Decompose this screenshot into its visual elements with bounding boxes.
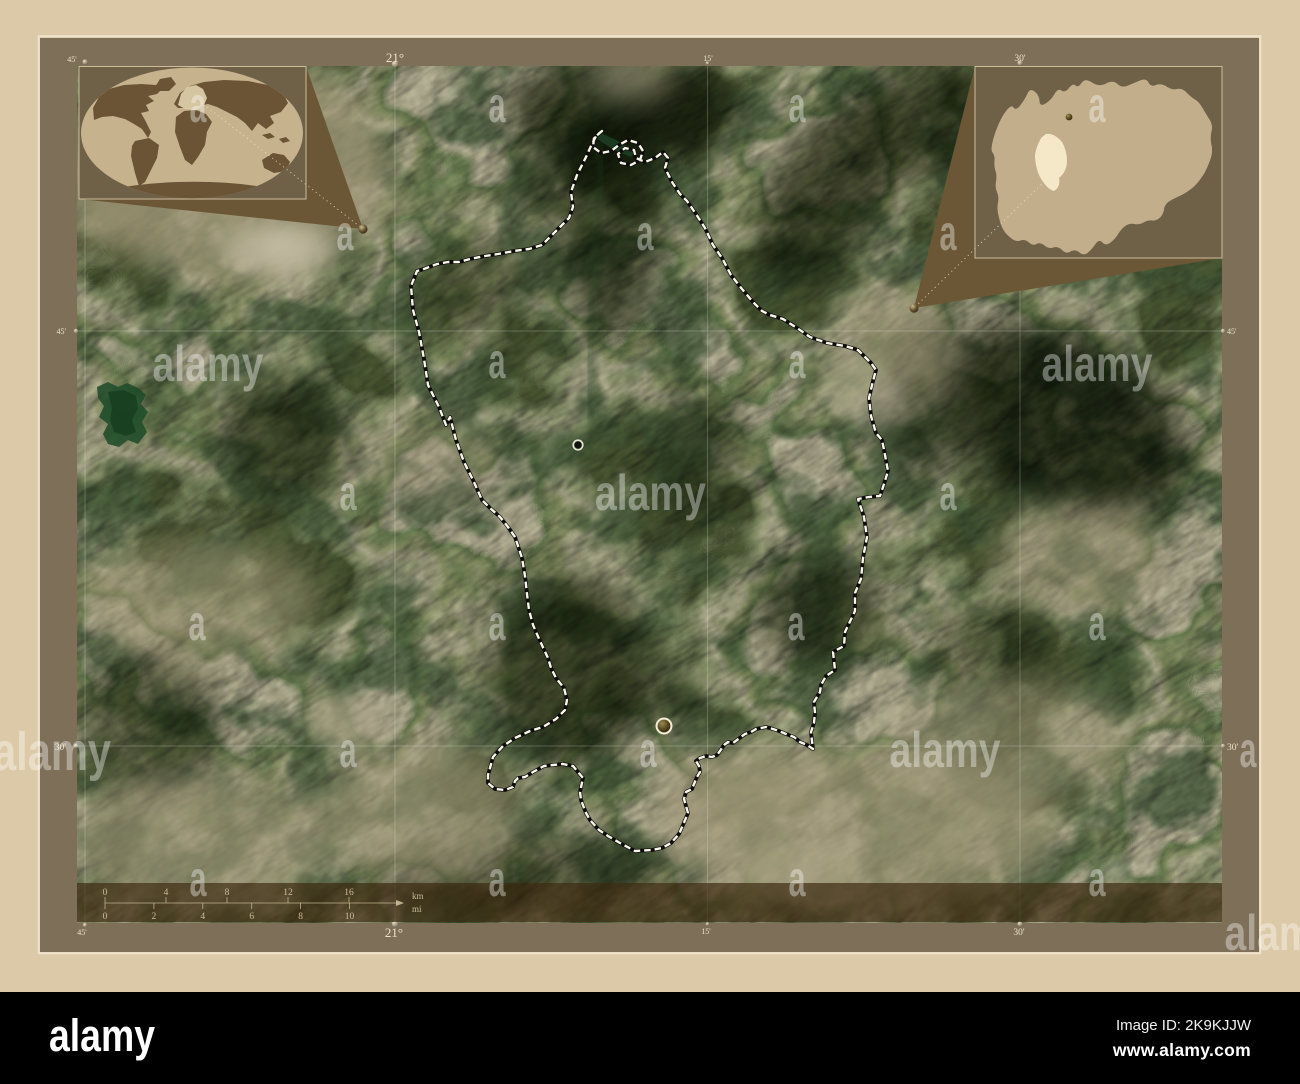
- svg-text:a: a: [489, 851, 507, 907]
- svg-text:a: a: [1089, 595, 1107, 651]
- svg-text:alamy: alamy: [890, 722, 1001, 778]
- svg-text:21°: 21°: [385, 925, 403, 940]
- svg-text:a: a: [340, 722, 358, 778]
- svg-text:15': 15': [703, 54, 713, 63]
- svg-text:mi: mi: [412, 904, 422, 914]
- svg-text:10: 10: [345, 912, 355, 922]
- svg-text:a: a: [189, 595, 207, 651]
- svg-text:45': 45': [1227, 327, 1237, 336]
- svg-text:4: 4: [200, 912, 205, 922]
- svg-text:30': 30': [1227, 743, 1239, 753]
- svg-text:6: 6: [249, 912, 254, 922]
- svg-text:a: a: [640, 722, 658, 778]
- svg-text:a: a: [337, 205, 355, 261]
- svg-text:a: a: [489, 595, 507, 651]
- svg-text:km: km: [412, 891, 424, 901]
- svg-text:30': 30': [1013, 928, 1025, 938]
- svg-text:a: a: [489, 77, 507, 133]
- svg-text:alamy: alamy: [1225, 905, 1300, 961]
- svg-text:45': 45': [77, 928, 87, 937]
- svg-text:2: 2: [152, 912, 157, 922]
- svg-text:a: a: [789, 77, 807, 133]
- svg-text:15': 15': [701, 927, 711, 936]
- svg-text:21°: 21°: [386, 50, 404, 65]
- svg-text:0: 0: [103, 912, 108, 922]
- svg-text:a: a: [1089, 77, 1107, 133]
- svg-text:alamy: alamy: [1042, 336, 1153, 392]
- svg-text:www.alamy.com: www.alamy.com: [1112, 1040, 1251, 1060]
- svg-text:0: 0: [103, 888, 108, 898]
- svg-text:a: a: [789, 333, 807, 389]
- svg-text:alamy: alamy: [0, 722, 111, 782]
- svg-text:a: a: [190, 77, 208, 133]
- svg-text:4: 4: [164, 888, 169, 898]
- svg-text:16: 16: [344, 888, 354, 898]
- svg-text:45': 45': [57, 327, 67, 336]
- svg-text:a: a: [489, 333, 507, 389]
- svg-text:a: a: [190, 851, 208, 907]
- svg-text:a: a: [1089, 851, 1107, 907]
- svg-text:8: 8: [225, 888, 230, 898]
- svg-text:a: a: [340, 465, 358, 521]
- svg-text:12: 12: [283, 888, 293, 898]
- svg-text:30': 30': [1014, 54, 1026, 64]
- svg-text:a: a: [788, 595, 806, 651]
- svg-text:alamy: alamy: [595, 465, 706, 521]
- svg-text:45': 45': [67, 55, 77, 64]
- svg-text:a: a: [940, 465, 958, 521]
- svg-text:alamy: alamy: [49, 1010, 155, 1061]
- svg-text:Image ID: 2K9KJJW: Image ID: 2K9KJJW: [1116, 1017, 1252, 1034]
- svg-text:8: 8: [298, 912, 303, 922]
- svg-text:a: a: [637, 205, 655, 261]
- svg-text:a: a: [940, 205, 958, 261]
- svg-text:a: a: [1240, 722, 1258, 778]
- svg-text:a: a: [789, 851, 807, 907]
- svg-text:alamy: alamy: [153, 336, 264, 392]
